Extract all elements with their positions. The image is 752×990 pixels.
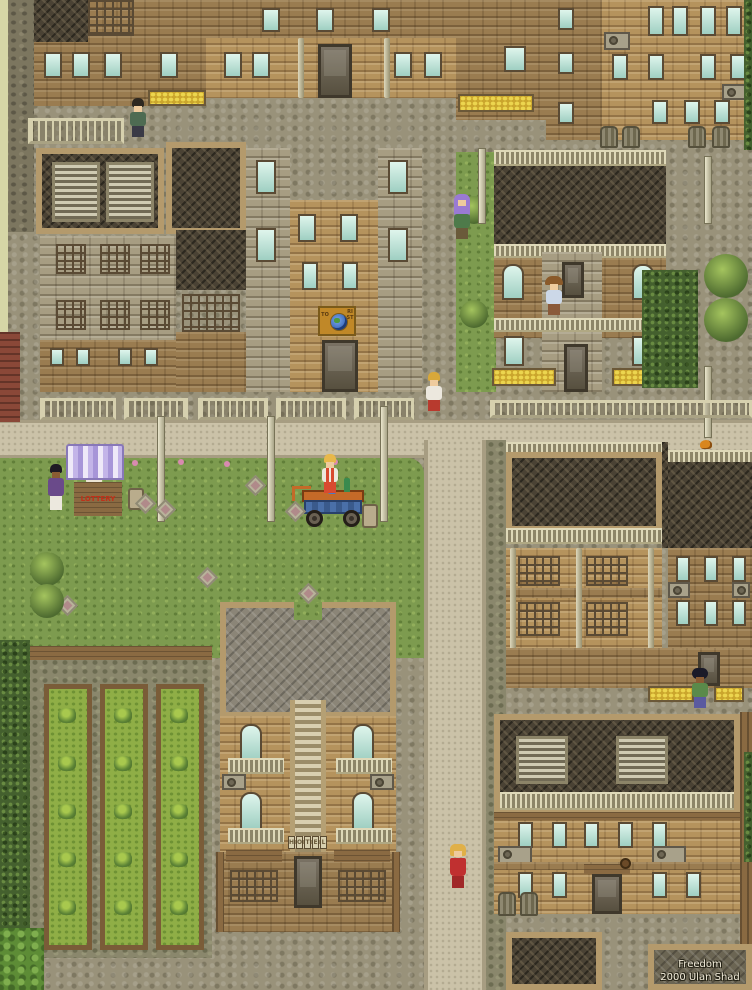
window: [104, 52, 122, 78]
credits-text: Freedom 2000 Ulan Shad: [654, 958, 746, 984]
window: [726, 6, 742, 36]
window: [44, 52, 62, 78]
balcony: [336, 828, 392, 844]
roof-patch: [34, 0, 88, 42]
tree: [30, 552, 64, 586]
grass-strip: [456, 152, 496, 392]
window: [686, 872, 701, 898]
garden-bush: [170, 804, 188, 819]
balcony-walkway-rail: [494, 318, 666, 332]
lamp-post: [478, 148, 486, 224]
trash-can: [600, 126, 618, 148]
window: [612, 54, 628, 80]
arched-window: [352, 724, 374, 762]
window: [262, 8, 280, 32]
road-fence: [124, 398, 188, 420]
window: [618, 822, 633, 848]
window: [140, 300, 170, 330]
window: [302, 262, 318, 290]
ac-unit: [604, 32, 630, 50]
road-fence: [490, 400, 752, 418]
roof-shutters: [52, 162, 100, 222]
arched-window: [240, 792, 262, 830]
window: [552, 822, 567, 848]
sign-board[interactable]: [362, 504, 378, 528]
door[interactable]: [564, 344, 588, 392]
window: [182, 294, 240, 332]
window: [76, 348, 90, 366]
npc[interactable]: [128, 98, 148, 140]
window: [586, 602, 628, 636]
storefront-window: [230, 870, 278, 902]
flowerbox: [458, 94, 534, 112]
window: [558, 8, 574, 30]
flowers-pink: [178, 459, 184, 465]
floor-band: [506, 588, 662, 598]
flowerbed: [492, 368, 556, 386]
ac-unit: [370, 774, 394, 790]
hotel-pillar: [216, 852, 224, 932]
hotel-sign-letter: E: [312, 836, 319, 849]
hotel-sign-letter: H: [288, 836, 295, 849]
roof-shutters: [106, 162, 154, 222]
road-fence: [198, 398, 268, 420]
window: [648, 54, 664, 80]
window: [252, 52, 270, 78]
tourist-door[interactable]: [322, 340, 358, 392]
window: [672, 6, 688, 36]
hotel-sign-letter: T: [304, 836, 311, 849]
garden-bush: [58, 852, 76, 867]
tower-base: [176, 332, 246, 392]
lamp-post: [704, 156, 712, 224]
lottery-stall-counter[interactable]: LOTTERY: [74, 482, 122, 516]
hotel-sign-letter: O: [296, 836, 303, 849]
cart-wheel: [343, 510, 360, 527]
window: [316, 8, 334, 32]
hedge-strip: [744, 752, 752, 862]
flowerbox: [148, 90, 206, 106]
rooftop: [166, 142, 246, 234]
red-brick-corner: [0, 332, 20, 422]
window: [144, 348, 158, 366]
window: [732, 600, 746, 626]
trash-can: [712, 126, 730, 148]
road-fence: [40, 398, 116, 420]
tourist-sign[interactable]: TO RIST: [318, 306, 356, 336]
npc[interactable]: [448, 844, 468, 892]
credits-panel: Freedom 2000 Ulan Shad: [648, 944, 752, 990]
arched-window: [352, 792, 374, 830]
window: [118, 348, 132, 366]
hedge: [642, 270, 698, 388]
flowerbed: [648, 686, 694, 702]
road-fence: [276, 398, 346, 420]
garden-bush: [114, 708, 132, 723]
bird: [700, 440, 712, 449]
window: [704, 600, 718, 626]
window: [652, 100, 668, 124]
npc[interactable]: [46, 464, 66, 516]
npc[interactable]: [320, 454, 340, 496]
storefront-window: [338, 870, 386, 902]
kettle-sign: [620, 858, 631, 869]
lamp-post: [380, 406, 388, 522]
window: [88, 0, 134, 36]
door[interactable]: [318, 44, 352, 98]
hotel-sign-letter: L: [320, 836, 327, 849]
globe-icon: [331, 314, 347, 330]
window: [424, 52, 442, 78]
building-wall-dark: [8, 0, 34, 232]
window: [652, 822, 667, 848]
credits-line1: Freedom: [654, 958, 746, 971]
window: [140, 244, 170, 274]
ac-unit: [222, 774, 246, 790]
garden-bush: [114, 900, 132, 915]
cornice: [494, 812, 740, 820]
storefront-awning: [226, 850, 282, 862]
tree: [30, 584, 64, 618]
window: [714, 100, 730, 124]
hotel-pillar: [392, 852, 400, 932]
rooftop-patio: [668, 462, 752, 548]
window: [388, 160, 408, 194]
tree: [460, 300, 488, 328]
window: [558, 102, 574, 124]
tower-roof: [176, 230, 246, 290]
patio-roof: [494, 166, 666, 244]
tree: [704, 298, 748, 342]
window: [72, 52, 90, 78]
window: [342, 262, 358, 290]
window: [584, 822, 599, 848]
drain-pipe: [576, 548, 582, 652]
street-fence: [28, 118, 124, 144]
window: [518, 556, 560, 586]
hedge-strip: [744, 0, 752, 150]
window: [340, 214, 358, 242]
garden-fence: [30, 646, 212, 660]
window: [552, 872, 567, 898]
window: [700, 54, 716, 80]
garden-bush: [58, 900, 76, 915]
window: [298, 214, 316, 242]
hotel-sign: H O T E L: [288, 836, 328, 850]
roof-skylight: [616, 736, 668, 784]
trash-can: [520, 892, 538, 916]
window: [388, 228, 408, 262]
window: [160, 52, 178, 78]
trash-can: [622, 126, 640, 148]
garden-bush: [58, 756, 76, 771]
lottery-sign-text: LOTTERY: [74, 494, 122, 504]
credits-line2: 2000 Ulan Shad: [654, 971, 746, 984]
npc[interactable]: [452, 194, 472, 244]
garden-bush: [114, 852, 132, 867]
ac-unit: [732, 582, 750, 598]
trash-can: [688, 126, 706, 148]
tree: [704, 254, 748, 298]
flowers-pink: [132, 460, 138, 466]
window: [56, 244, 86, 274]
window: [586, 556, 628, 586]
bottle: [344, 478, 350, 492]
garden-bush: [170, 852, 188, 867]
drain-pipe: [648, 548, 654, 652]
hotel-door[interactable]: [294, 856, 322, 908]
garden-bush: [58, 804, 76, 819]
window: [518, 602, 560, 636]
window: [558, 52, 574, 74]
window: [700, 6, 716, 36]
window: [504, 46, 526, 72]
window: [676, 600, 690, 626]
window: [256, 160, 276, 194]
town-map: TO RIST LOTTERY: [0, 0, 752, 990]
garden-bush: [58, 708, 76, 723]
drain-pipe: [384, 38, 390, 98]
flowerbed: [714, 686, 744, 702]
hotel-roof-notch: [294, 602, 322, 620]
roof-skylight: [516, 736, 568, 784]
garden-bush: [114, 804, 132, 819]
road-vertical: [424, 440, 486, 990]
stall-awning: [66, 444, 124, 480]
balcony: [228, 828, 284, 844]
drain-pipe: [510, 548, 516, 652]
bush-corner: [0, 928, 44, 990]
window: [224, 52, 242, 78]
window: [56, 300, 86, 330]
ac-unit: [668, 582, 690, 598]
roof-railing: [500, 792, 734, 810]
window: [50, 348, 64, 366]
npc[interactable]: [544, 276, 564, 318]
window: [256, 228, 276, 262]
patio-railing: [494, 150, 666, 166]
window: [518, 822, 533, 848]
building-topright-tower: [546, 0, 602, 140]
balcony: [228, 758, 284, 774]
window: [652, 872, 667, 898]
garden-bush: [170, 900, 188, 915]
tourist-sign-text-right: RIST: [346, 309, 354, 321]
window: [504, 336, 524, 366]
flowers-pink: [224, 461, 230, 467]
patio-railing: [506, 528, 662, 544]
shop-door[interactable]: [592, 874, 622, 914]
balcony: [336, 758, 392, 774]
window: [394, 52, 412, 78]
trash-can: [498, 892, 516, 916]
storefront-awning: [334, 850, 390, 862]
rooftop: [506, 932, 602, 990]
balcony-door[interactable]: [562, 262, 584, 298]
npc[interactable]: [690, 668, 710, 710]
window: [100, 244, 130, 274]
arched-window: [502, 264, 524, 300]
window: [372, 8, 390, 32]
window: [648, 6, 664, 36]
window: [684, 100, 700, 124]
drain-pipe: [298, 38, 304, 98]
window: [100, 300, 130, 330]
cart-wheel: [306, 510, 323, 527]
garden-bush: [170, 756, 188, 771]
window: [676, 556, 690, 582]
rooftop-patio: [506, 452, 662, 532]
lamp-post: [267, 416, 275, 522]
npc[interactable]: [424, 372, 444, 414]
arched-window: [240, 724, 262, 762]
tourist-sign-text-left: TO: [321, 312, 329, 318]
garden-bush: [170, 708, 188, 723]
window: [704, 556, 718, 582]
window: [732, 556, 746, 582]
garden-bush: [114, 756, 132, 771]
